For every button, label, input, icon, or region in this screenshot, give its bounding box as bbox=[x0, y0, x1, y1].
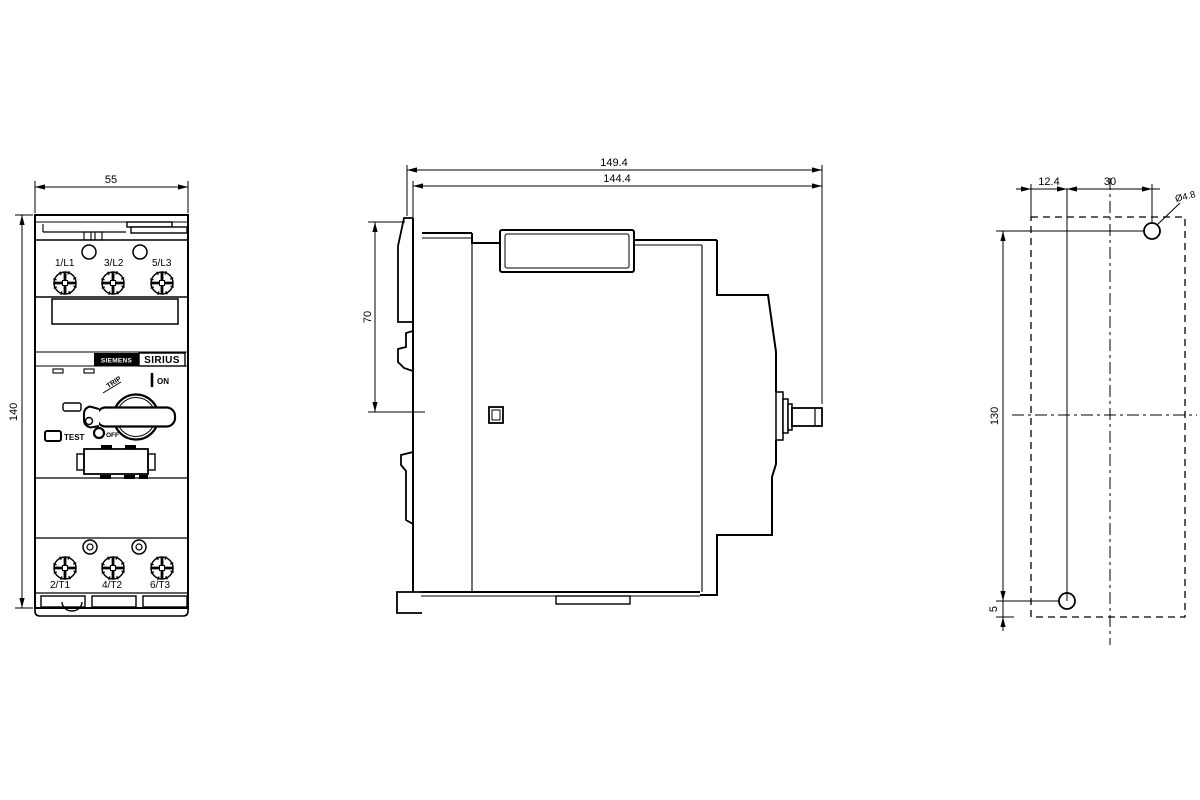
arrowhead bbox=[1067, 186, 1077, 191]
arrowhead bbox=[812, 167, 822, 172]
side-view: 149.4 144.4 70 bbox=[362, 157, 822, 613]
fixing-hole bbox=[132, 540, 146, 554]
device-outline-dashed bbox=[1031, 217, 1185, 617]
front-profile-lower bbox=[700, 440, 776, 595]
dim-vertical-spacing: 130 bbox=[989, 407, 1001, 425]
front-profile-upper bbox=[717, 240, 776, 392]
arrowhead bbox=[1000, 231, 1005, 241]
dim-front-width: 55 bbox=[105, 174, 117, 186]
terminal-screw bbox=[53, 271, 77, 295]
din-rail-clip bbox=[398, 218, 413, 524]
dim-bottom-offset: 5 bbox=[988, 606, 1000, 612]
front-height-dimension: 140 bbox=[8, 215, 33, 608]
arrowhead bbox=[178, 184, 188, 189]
fixing-hole bbox=[83, 540, 97, 554]
terminal-label-4T2: 4/T2 bbox=[102, 580, 122, 591]
release-window bbox=[489, 407, 503, 423]
arrowhead bbox=[1142, 186, 1152, 191]
drill-plan: 12.4 30 Ø4.8 130 5 bbox=[988, 176, 1197, 645]
terminal-screw bbox=[101, 271, 125, 295]
arrowhead bbox=[1021, 186, 1031, 191]
terminal-label-2T1: 2/T1 bbox=[50, 580, 70, 591]
dim-hole-diameter: Ø4.8 bbox=[1174, 189, 1197, 205]
terminal-screw bbox=[150, 556, 174, 580]
dim-total-depth: 149.4 bbox=[600, 157, 628, 169]
dim-mounting-depth: 144.4 bbox=[603, 173, 631, 185]
side-body bbox=[397, 218, 822, 613]
off-label: OFF bbox=[106, 432, 119, 439]
terminal-label-3L2: 3/L2 bbox=[104, 258, 124, 269]
terminal-label-5L3: 5/L3 bbox=[152, 258, 172, 269]
clip-foot bbox=[397, 592, 422, 613]
dim-hole-spacing: 30 bbox=[1104, 176, 1116, 188]
terminal-label-1L1: 1/L1 bbox=[55, 258, 75, 269]
arrowhead bbox=[407, 167, 417, 172]
dim-handle-height: 70 bbox=[362, 311, 374, 323]
arrowhead bbox=[372, 402, 377, 412]
arrowhead bbox=[812, 183, 822, 188]
hole-diameter-callout: Ø4.8 bbox=[1157, 189, 1197, 225]
terminal-screw bbox=[101, 556, 125, 580]
arrowhead bbox=[35, 184, 45, 189]
terminal-screw bbox=[150, 271, 174, 295]
hole-vertical-dimensions: 130 5 bbox=[988, 231, 1006, 631]
on-label: ON bbox=[157, 377, 169, 386]
front-view: 55 140 1/L1 3/ bbox=[8, 174, 188, 616]
dim-hole-offset: 12.4 bbox=[1038, 176, 1059, 188]
terminal-screw bbox=[53, 556, 77, 580]
terminal-label-6T3: 6/T3 bbox=[150, 580, 170, 591]
arrowhead bbox=[1000, 591, 1005, 601]
side-mounting-depth-dimension: 144.4 bbox=[413, 173, 822, 218]
rotary-handle-grip[interactable] bbox=[97, 408, 175, 427]
hole-horizontal-dimensions: 12.4 30 bbox=[1016, 176, 1160, 222]
dimension-drawing-page: 55 140 1/L1 3/ bbox=[0, 0, 1200, 800]
bottom-tab bbox=[556, 596, 630, 604]
front-bottom-lip bbox=[35, 608, 188, 616]
handle-shaft bbox=[792, 408, 822, 426]
dim-front-height: 140 bbox=[8, 403, 20, 421]
arrowhead bbox=[19, 215, 24, 225]
side-total-depth-dimension: 149.4 bbox=[407, 157, 822, 404]
brand-text: SIEMENS bbox=[101, 358, 133, 365]
mounting-hole-top bbox=[1144, 223, 1160, 239]
test-label: TEST bbox=[64, 433, 85, 442]
top-terminal-cover bbox=[500, 230, 634, 272]
arrowhead bbox=[372, 222, 377, 232]
side-handle-height-dimension: 70 bbox=[362, 222, 425, 412]
handle-flange bbox=[776, 392, 783, 440]
dimension-drawing: 55 140 1/L1 3/ bbox=[0, 0, 1200, 800]
arrowhead bbox=[413, 183, 423, 188]
series-text: SIRIUS bbox=[144, 355, 180, 366]
arrowhead bbox=[19, 598, 24, 608]
front-width-dimension: 55 bbox=[35, 174, 188, 213]
arrowhead bbox=[1000, 617, 1005, 627]
